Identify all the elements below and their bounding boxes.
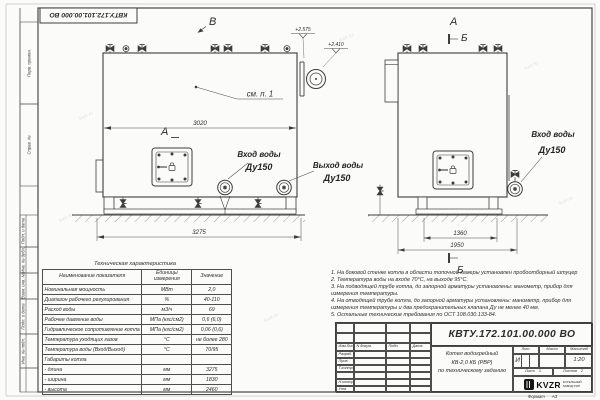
tb-row-label: Утв. [336, 386, 354, 393]
furnace-door [152, 148, 192, 186]
product-title-line: по техническому заданию [432, 367, 512, 376]
dim-1950-text: 1950 [450, 243, 464, 249]
note-item: 2. Температура воды на входе 70°С, на вы… [331, 277, 589, 284]
spec-cell: - ширина [43, 375, 142, 385]
drain-valve-icon [195, 197, 201, 207]
spec-row: Габариты котла [43, 355, 232, 365]
boiler-side-view [96, 45, 326, 215]
spec-cell: 2,0 [192, 285, 232, 295]
port-labels-right: Вход воды Ду150 [521, 130, 575, 182]
sheets-value: 2 [581, 370, 583, 374]
view-b-label: В [209, 16, 216, 28]
spec-table: Наименование показателя Единицы измерени… [42, 269, 232, 395]
drain-valve-icon [255, 197, 261, 207]
spec-cell: Расход воды [43, 305, 142, 315]
sheet-label: Лист [525, 370, 535, 374]
note-item: 4. На отводящей трубе котла, до запорной… [331, 298, 589, 312]
drain-valve-icon [377, 185, 383, 195]
inlet-water-size: Ду150 [245, 162, 273, 172]
valve-icon [211, 45, 219, 54]
stamp-label: Инв. № дубл. [21, 247, 26, 273]
section-b-label: Б [461, 33, 468, 44]
dim-3020-text: 3020 [193, 120, 207, 127]
elevation-marks: +2.575 +2.410 [291, 27, 348, 67]
note-item: 5. Остальные технические требования по О… [331, 312, 589, 319]
ground-line [72, 215, 305, 222]
ground-line [368, 215, 548, 222]
spec-cell: Диапазон рабочего регулирования [43, 295, 142, 305]
valve-icon [479, 45, 487, 54]
spec-cell: 40-110 [192, 295, 232, 305]
top-doc-number-box: КВТУ.172.101.00.000 ВО [40, 8, 137, 23]
technical-notes: 1. На боковой стенке котла в области топ… [331, 270, 589, 319]
document-number: КВТУ.172.101.00.000 ВО [431, 323, 593, 346]
spec-cell: Габариты котла [43, 355, 142, 365]
mass-header: Масса [539, 346, 565, 354]
valve-icon [224, 45, 232, 54]
format-label: Формат А3 [493, 392, 592, 400]
company-line: ЗАВОД РЭП [563, 385, 582, 389]
watermark-text: kvzr.ru [558, 195, 574, 207]
watermark-text: kvzr.ru [263, 312, 279, 324]
spec-row: - ширинамм1830 [43, 375, 232, 385]
tb-row-label: Н.контр. [336, 379, 354, 386]
stamp-label: Справ. № [27, 135, 32, 154]
spec-table-title: Техническая характеристика [42, 261, 228, 267]
spec-cell: МПа (кгс/см2) [142, 325, 192, 335]
spec-row: - высотамм2460 [43, 385, 232, 395]
spec-row: Температура воды (Вход/Выход)°С70/95 [43, 345, 232, 355]
section-b-top: Б [449, 33, 468, 44]
spec-cell: мм [142, 375, 192, 385]
tb-row-label [336, 372, 354, 379]
spec-cell: м3/ч [142, 305, 192, 315]
tb-col-header: Изм.Лист [336, 343, 354, 351]
title-block-revision-area: Изм.Лист N докум. Подп. Дата Разраб. Про… [336, 323, 431, 391]
company-logo: KVZR КОТЕЛЬНЫЙ ЗАВОД РЭП [513, 376, 593, 393]
spec-row: Температура уходящих газов°Сне более 280 [43, 335, 232, 345]
note-item: 1. На боковой стенке котла в области топ… [331, 270, 589, 277]
note-item: 3. На подводящей трубе котла, до запорно… [331, 284, 589, 298]
spec-row: Рабочее давление водыМПа (кгс/см2)0,6 (6… [43, 315, 232, 325]
spec-cell: Температура воды (Вход/Выход) [43, 345, 142, 355]
elevation-1: +2.575 [295, 27, 311, 33]
spec-cell: °С [142, 335, 192, 345]
spec-cell: не более 280 [192, 335, 232, 345]
spec-cell: 70/95 [192, 345, 232, 355]
valve-icon [403, 45, 411, 54]
spec-cell: МВт [142, 285, 192, 295]
spec-cell: Температура уходящих газов [43, 335, 142, 345]
flue-outlet [300, 62, 326, 96]
spec-cell: 1830 [192, 375, 232, 385]
scale-value: 1:20 [565, 354, 593, 368]
spec-row: Номинальная мощностьМВт2,0 [43, 285, 232, 295]
lit-value: И [514, 355, 522, 367]
spec-cell: °С [142, 345, 192, 355]
water-flange [218, 180, 233, 195]
valve-icon [261, 45, 269, 54]
inlet-water-size: Ду150 [538, 145, 566, 155]
furnace-door [433, 151, 473, 189]
tb-row-label: Разраб. [336, 351, 354, 358]
vent-cap-icon [284, 46, 290, 54]
spec-cell: мм [142, 365, 192, 375]
product-title-line: Котел водогрейный [432, 350, 512, 359]
inlet-water-label: Вход воды [237, 150, 280, 159]
spec-cell: - высота [43, 385, 142, 395]
valve-icon [106, 45, 114, 54]
sheet-value: 1 [539, 370, 541, 374]
spec-cell [142, 355, 192, 365]
valve-icon [511, 171, 519, 180]
valve-icon [419, 45, 427, 54]
spec-cell: МПа (кгс/см2) [142, 315, 192, 325]
view-a-label: А [449, 16, 457, 28]
outlet-water-size: Ду150 [323, 173, 351, 183]
lit-header: Лит. [513, 346, 539, 354]
water-flange [508, 182, 523, 197]
tb-col-header: Дата [410, 343, 431, 351]
water-flange [277, 180, 292, 195]
spec-cell: Рабочее давление воды [43, 315, 142, 325]
format-word: Формат [528, 394, 545, 399]
product-title-line: КВ-2,0 КБ (РВР) [432, 359, 512, 368]
spec-row: - длинамм3275 [43, 365, 232, 375]
tb-row-label: Т.контр. [336, 365, 354, 372]
spec-cell: 0,06 (0,6) [192, 325, 232, 335]
inlet-water-label: Вход воды [531, 130, 574, 139]
stamp-label: Перв. примен. [27, 49, 32, 77]
watermark-text: kvzr.ru [523, 60, 539, 72]
boiler-front-view [377, 45, 522, 215]
title-block: Изм.Лист N докум. Подп. Дата Разраб. Про… [335, 322, 592, 392]
sheets-label: Листов [563, 370, 577, 374]
spec-cell: 3275 [192, 365, 232, 375]
spec-header-row: Наименование показателя Единицы измерени… [43, 270, 232, 285]
spec-cell: 69 [192, 305, 232, 315]
logo-text: KVZR [536, 380, 560, 390]
kvzr-logo-icon [524, 379, 534, 390]
spec-cell: мм [142, 385, 192, 395]
spec-cell: Гидравлическое сопротивление котла [43, 325, 142, 335]
elevation-2: +2.410 [328, 42, 344, 48]
spec-cell: 0,6 (6,0) [192, 315, 232, 325]
spec-row: Гидравлическое сопротивление котлаМПа (к… [43, 325, 232, 335]
spec-cell: Номинальная мощность [43, 285, 142, 295]
stamp-label: Подп. и дата [21, 303, 26, 330]
scale-header: Масштаб [565, 346, 593, 354]
stamp-label: Инв. № подл. [21, 338, 26, 364]
view-b-marker: В [198, 16, 217, 33]
view-a-side-label: А [160, 126, 168, 138]
see-note-text: см. п. 1 [247, 90, 274, 99]
spec-header: Значение [192, 270, 232, 285]
company-name: КОТЕЛЬНЫЙ ЗАВОД РЭП [563, 381, 582, 388]
dim-3275-text: 3275 [192, 229, 206, 236]
top-doc-number: КВТУ.172.101.00.000 ВО [49, 11, 128, 18]
mass-value [539, 354, 565, 368]
dim-1360-text: 1360 [453, 231, 467, 237]
spec-cell: % [142, 295, 192, 305]
vent-cap-icon [123, 46, 129, 54]
spec-cell [192, 355, 232, 365]
format-value: А3 [552, 394, 557, 399]
spec-header: Наименование показателя [43, 270, 142, 285]
spec-cell: 2460 [192, 385, 232, 395]
stamp-label: Взам. инв. № [21, 273, 26, 299]
spec-row: Расход водым3/ч69 [43, 305, 232, 315]
drain-valve-icon [120, 197, 126, 207]
watermark-text: kvzr.ru [78, 110, 94, 122]
drawing-sheet: kvzr.ru kvzr.ru kvzr.ru kvzr.ru kvzr.ru … [0, 0, 600, 400]
spec-header: Единицы измерения [142, 270, 192, 285]
spec-cell: - длина [43, 365, 142, 375]
product-title: Котел водогрейный КВ-2,0 КБ (РВР) по тех… [431, 346, 513, 393]
tb-row-label: Пров. [336, 358, 354, 365]
tb-col-header: N докум. [354, 343, 386, 351]
valve-icon [138, 45, 146, 54]
spec-row: Диапазон рабочего регулирования%40-110 [43, 295, 232, 305]
tb-col-header: Подп. [386, 343, 410, 351]
outlet-water-label: Выход воды [313, 161, 363, 170]
stamp-label: Подп. и дата [21, 217, 26, 244]
valve-icon [494, 45, 502, 54]
